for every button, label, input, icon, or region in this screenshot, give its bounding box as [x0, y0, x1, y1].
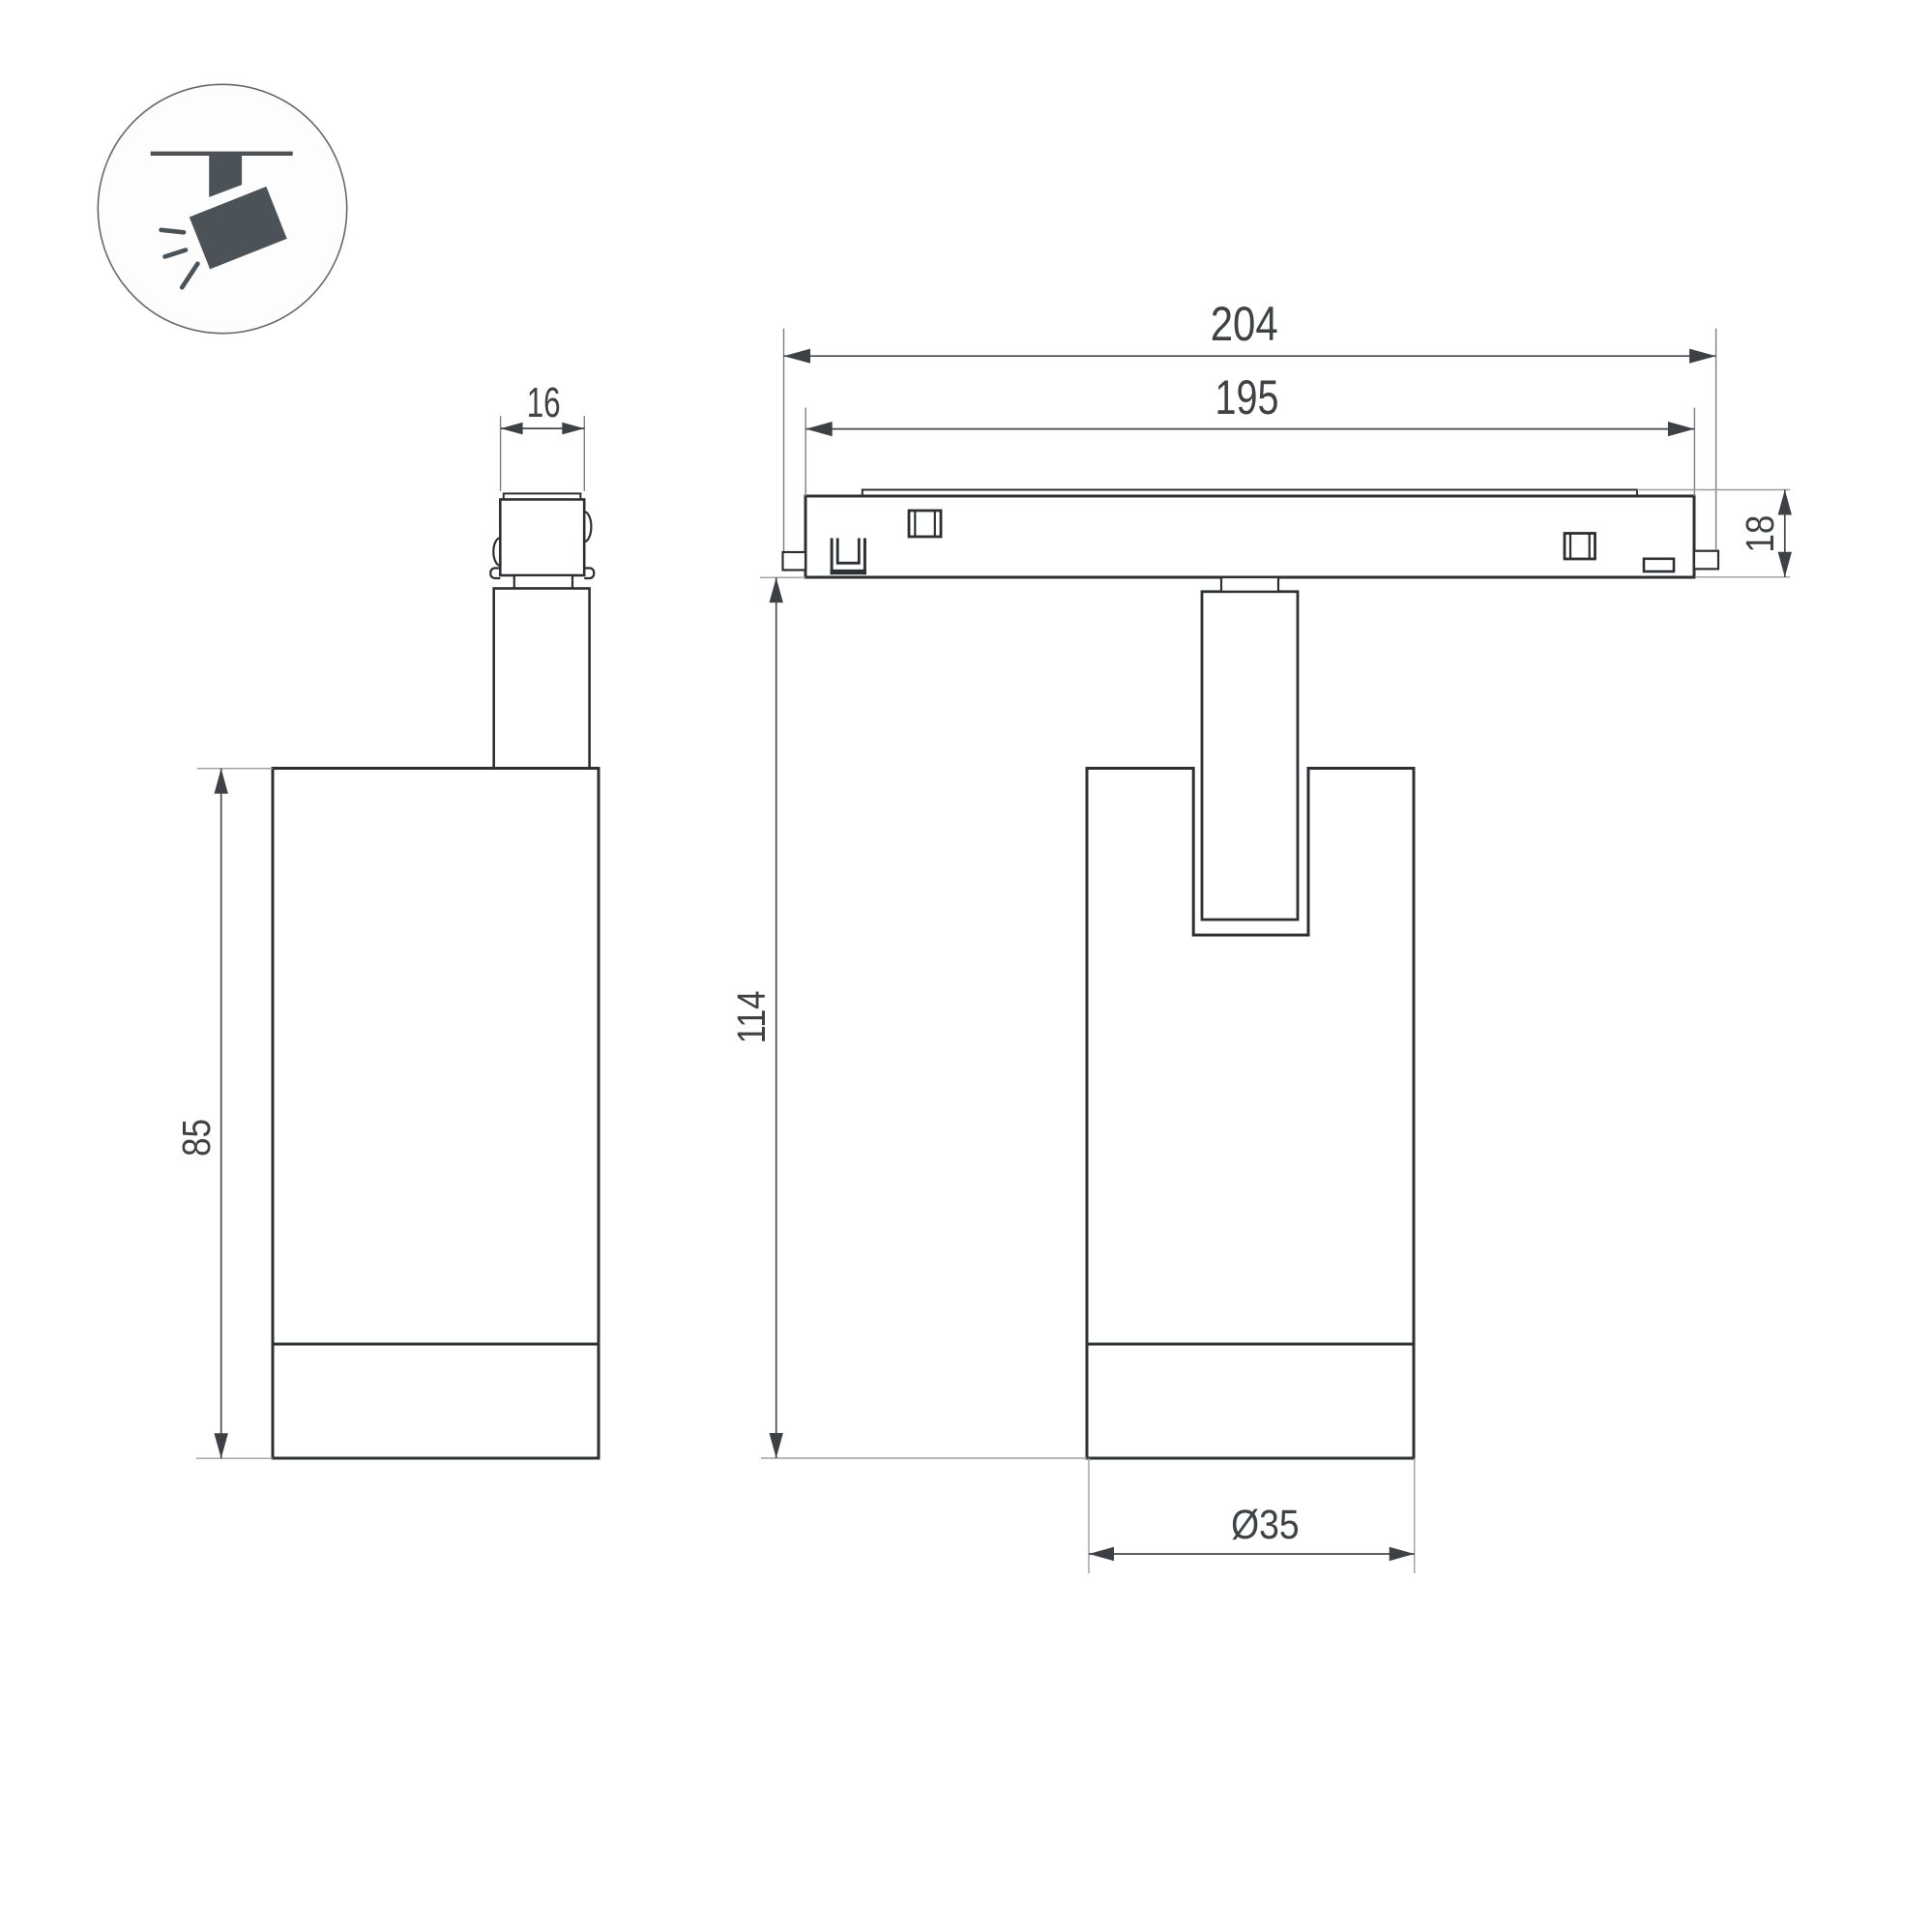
svg-text:Ø35: Ø35: [1231, 1502, 1300, 1548]
svg-text:18: 18: [1738, 515, 1782, 553]
svg-text:195: 195: [1215, 370, 1279, 424]
svg-text:114: 114: [729, 990, 774, 1043]
svg-text:16: 16: [527, 379, 561, 426]
svg-text:85: 85: [174, 1119, 219, 1156]
svg-text:204: 204: [1211, 297, 1278, 351]
